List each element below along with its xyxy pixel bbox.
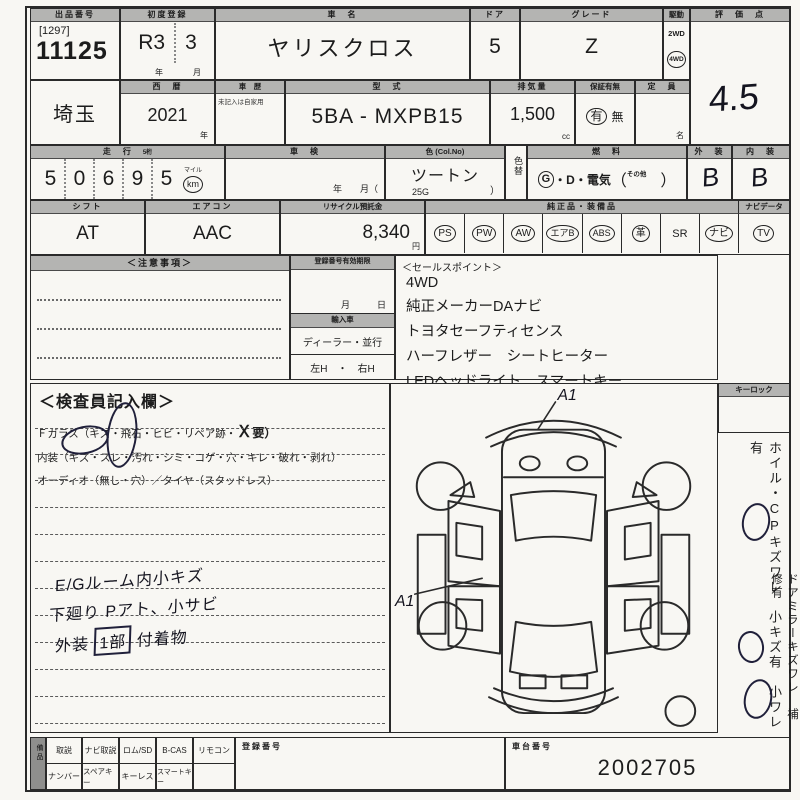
bottom-item-spare-key: スペアキー	[82, 763, 119, 790]
region-value: 埼玉	[31, 81, 119, 143]
equipment-abs: ABS	[583, 214, 622, 253]
equipment-tv: TV	[739, 214, 788, 253]
recycle-fee-value: 8,340	[281, 214, 424, 244]
capacity-cell: 定 員 名	[635, 80, 690, 145]
capacity-header: 定 員	[636, 81, 689, 94]
notice-blank-line	[37, 328, 281, 330]
warranty-options: 有 無	[576, 94, 634, 139]
sales-point: トヨタセーフティセンス	[396, 316, 717, 341]
door-header: ドア	[471, 9, 519, 22]
score-cell: 評 価 点 4.5	[690, 8, 790, 145]
mileage-cell: 走 行 5桁 5 0 6 9 5 マイル km	[30, 145, 225, 200]
notice-box: ＜注意事項＞	[30, 255, 290, 380]
dashed-line	[35, 696, 385, 697]
key-lock-cell: キーロック	[718, 383, 790, 433]
door-cell: ドア 5	[470, 8, 520, 80]
mileage-note: 5桁	[143, 150, 152, 156]
sales-points-box: ＜セールスポイント＞ 4WD 純正メーカーDAナビ トヨタセーフティセンス ハー…	[395, 255, 718, 380]
fuel-cell: 燃 料 G ・D・電気 （ その他 ）	[527, 145, 687, 200]
mileage-unit-block: マイル km	[183, 165, 203, 193]
rear-left-door-window	[456, 599, 482, 631]
first-registration-era: R3	[138, 31, 165, 55]
handwritten-boxed-text: 1部	[94, 625, 132, 656]
sidebar-mirror-note: ドアミラーキズワレ 補修有	[768, 573, 800, 733]
handle-position-option: 左H ・ 右H	[291, 355, 394, 379]
sales-points-header: ＜セールスポイント＞	[396, 256, 717, 274]
color-cell: 色 (Col.No) ツートン 25G ）	[385, 145, 505, 200]
lot-number-header: 出品番号	[31, 9, 119, 22]
displacement-cell: 排気量 1,500 cc	[490, 80, 575, 145]
nav-data-header: ナビデータ	[738, 201, 789, 214]
aircon-header: エアコン	[146, 201, 279, 214]
color-value: ツートン	[386, 159, 504, 186]
chassis-number-header: 車台番号	[506, 738, 789, 755]
recycle-fee-cell: リサイクル預託金 8,340 円	[280, 200, 425, 255]
equipment-sr: SR	[661, 214, 700, 253]
bottom-item-remote: リモコン	[193, 737, 235, 764]
grade-cell: グレード Z	[520, 8, 663, 80]
accessories-side-label-cell: 備品	[30, 737, 46, 790]
first-registration-value: R3 3	[121, 22, 214, 64]
bottom-item-plate: ナンバー	[46, 763, 82, 790]
grade-header: グレード	[521, 9, 662, 22]
notice-blank-line	[37, 357, 281, 359]
car-name-header: 車 名	[216, 9, 469, 22]
bottom-item-manual: 取説	[46, 737, 82, 764]
drivetrain-header: 駆動	[664, 9, 689, 22]
left-side-panel	[418, 535, 446, 634]
fuel-value: G ・D・電気 （ その他 ）	[528, 159, 686, 199]
displacement-header: 排気量	[491, 81, 574, 94]
shift-value: AT	[31, 214, 144, 254]
fuel-header: 燃 料	[528, 146, 686, 159]
audio-tire-checklist: オーディオ（無し・穴）／タイヤ（スタッドレス）	[31, 465, 389, 488]
lot-number-cell: 出品番号 [1297] 11125	[30, 8, 120, 80]
interior-grade-header: 内 装	[733, 146, 789, 159]
damage-mark-a1-left: A1	[394, 593, 414, 610]
interior-grade-cell: 内 装 B	[732, 145, 790, 200]
right-side-panel	[662, 535, 690, 634]
registration-validity-header: 登録番号有効期限	[291, 256, 394, 270]
mileage-digit: 0	[66, 159, 95, 199]
car-top-view-diagram: A1 A1	[391, 384, 716, 731]
stamp-circle	[665, 696, 695, 726]
displacement-value: 1,500	[491, 94, 574, 134]
rear-right-door-window	[625, 599, 651, 631]
warranty-no: 無	[612, 108, 624, 125]
sales-point: ハーフレザー シートヒーター	[396, 341, 717, 366]
km-unit-circled: km	[183, 176, 203, 193]
mileage-digit: 6	[95, 159, 124, 199]
month-unit-label: 月	[193, 67, 201, 78]
door-count: 5	[471, 22, 519, 72]
damage-mark-a1-top: A1	[556, 387, 576, 404]
recycle-fee-header: リサイクル預託金	[281, 201, 424, 214]
rear-bumper	[489, 697, 618, 713]
auction-sheet: 出品番号 [1297] 11125 初度登録 R3 3 年 月 車 名 ヤリスク…	[0, 0, 800, 800]
history-cell: 車 歴 未記入は自家用	[215, 80, 285, 145]
car-name: ヤリスクロス	[216, 22, 469, 72]
capacity-unit: 名	[676, 130, 684, 141]
shift-header: シフト	[31, 201, 144, 214]
year-header: 西 暦	[121, 81, 214, 94]
bottom-item-navi-manual: ナビ取説	[82, 737, 119, 764]
bottom-item-bcas: B-CAS	[156, 737, 193, 764]
equipment-cell: 純正品・装備品 ナビデータ PS PW AW エアB ABS 革 SR ナビ T…	[425, 200, 790, 255]
model-code-cell: 型 式 5BA - MXPB15	[285, 80, 490, 145]
exterior-grade-header: 外 装	[688, 146, 731, 159]
bottom-item-smart-key: スマートキー	[156, 763, 193, 790]
rear-right-wheel	[641, 602, 689, 650]
displacement-unit: cc	[562, 132, 570, 141]
warranty-yes-circled: 有	[586, 108, 606, 125]
windshield	[511, 491, 596, 541]
equipment-navi: ナビ	[700, 214, 739, 253]
mileage-digits: 5 0 6 9 5 マイル km	[31, 159, 224, 199]
import-car-header: 輸入車	[291, 314, 394, 328]
year-cell: 西 暦 2021 年	[120, 80, 215, 145]
accessories-side-label: 備品	[34, 744, 44, 762]
rear-bumper-inner	[494, 688, 613, 701]
color-change-cell: 色替	[505, 145, 527, 200]
middle-column: 登録番号有効期限 月 日 輸入車 ディーラー・並行 左H ・ 右H	[290, 255, 395, 380]
drivetrain-4wd-circled: 4WD	[667, 51, 685, 68]
notice-blank-line	[37, 299, 281, 301]
grade-value: Z	[521, 22, 662, 72]
color-code: 25G	[412, 187, 429, 197]
rear-left-wheel	[419, 602, 467, 650]
chassis-number-value: 2002705	[506, 755, 789, 781]
validity-units: 月 日	[341, 298, 386, 311]
sales-point: 4WD	[396, 274, 717, 291]
inspector-notes-title: ＜検査員記入欄＞	[31, 384, 389, 412]
fuel-paren-close: ）	[660, 167, 676, 191]
damage-mark-line	[538, 402, 556, 430]
sales-point: 純正メーカーDAナビ	[396, 291, 717, 316]
warranty-cell: 保証有無 有 無	[575, 80, 635, 145]
mileage-digit: 9	[124, 159, 153, 199]
first-registration-cell: 初度登録 R3 3 年 月	[120, 8, 215, 80]
car-diagram-box: A1 A1	[390, 383, 718, 733]
equipment-header: 純正品・装備品	[426, 201, 738, 214]
sidebar-notes: ホイル・CPキズワレ 小キズ有 小ワレ有 ドアミラーキズワレ 補修有	[718, 433, 790, 733]
first-registration-month: 3	[185, 31, 197, 55]
bottom-item-rom-sd: ロム/SD	[119, 737, 156, 764]
dashed-line	[35, 669, 385, 670]
dashed-line	[35, 534, 385, 535]
drivetrain-4wd-wrap: 4WD	[664, 38, 689, 68]
inspection-expiry-cell: 車 検 年 月（	[225, 145, 385, 200]
bottom-item-empty	[193, 763, 235, 790]
fuel-gasoline-circled: G	[538, 171, 555, 188]
dashed-line	[35, 507, 385, 508]
score-header: 評 価 点	[691, 9, 789, 22]
score-handwritten: 4.5	[708, 75, 759, 121]
recycle-fee-unit: 円	[412, 241, 420, 252]
dashed-line	[35, 454, 385, 455]
dashed-line	[35, 480, 385, 481]
first-registration-header: 初度登録	[121, 9, 214, 22]
history-header: 車 歴	[216, 81, 284, 94]
front-left-door-window	[456, 523, 482, 560]
equipment-airbag: エアB	[543, 214, 582, 253]
inspector-notes-box: ＜検査員記入欄＞ Ｆガラス（キズ・飛石・ヒビ・リペア跡・Ｘ要） 内装（キズ・スレ…	[30, 383, 390, 733]
inspection-expiry-header: 車 検	[226, 146, 384, 159]
equipment-aw: AW	[504, 214, 543, 253]
hood-detail	[567, 456, 587, 470]
color-paren-close: ）	[490, 182, 500, 197]
lot-number: 11125	[31, 37, 119, 66]
chassis-number-cell: 車台番号 2002705	[505, 737, 790, 790]
aircon-cell: エアコン AAC	[145, 200, 280, 255]
front-glass-x-mark: Ｘ	[236, 424, 252, 441]
color-change-label: 色替	[512, 156, 525, 176]
fuel-other-label: その他	[627, 168, 647, 178]
notice-header: ＜注意事項＞	[31, 256, 289, 271]
equipment-ps: PS	[426, 214, 465, 253]
handwritten-note: E/Gルーム内小キズ	[55, 562, 205, 597]
color-header: 色 (Col.No)	[386, 146, 504, 159]
equipment-icon-row: PS PW AW エアB ABS 革 SR ナビ TV	[426, 214, 788, 253]
aircon-value: AAC	[146, 214, 279, 254]
drivetrain-2wd: 2WD	[664, 22, 689, 38]
car-body	[502, 430, 605, 713]
fuel-paren-open: （	[611, 167, 627, 191]
year-unit: 年	[200, 130, 208, 141]
handwritten-note: 外装 1部 付着物	[55, 621, 189, 658]
key-lock-header: キーロック	[719, 384, 789, 397]
equipment-pw: PW	[465, 214, 504, 253]
warranty-header: 保証有無	[576, 81, 634, 94]
model-code: 5BA - MXPB15	[286, 94, 489, 139]
hood-detail	[520, 456, 540, 470]
fuel-rest: ・D・電気	[554, 171, 611, 188]
dashed-line	[35, 561, 385, 562]
mile-unit-label: マイル	[183, 165, 203, 174]
mileage-digit: 5	[153, 159, 180, 199]
exterior-grade-handwritten: B	[701, 161, 719, 193]
inspection-expiry-units: 年 月（	[333, 182, 378, 195]
dashed-line	[35, 723, 385, 724]
dealer-parallel-option: ディーラー・並行	[291, 328, 394, 355]
year-unit-label: 年	[155, 67, 163, 78]
region-cell: 埼玉	[30, 80, 120, 145]
mileage-digit: 5	[37, 159, 66, 199]
registration-number-header: 登録番号	[236, 738, 504, 755]
lot-bracket: [1297]	[31, 22, 119, 37]
front-right-door-window	[625, 523, 651, 560]
handwritten-note: 下廻り Pアト、小サビ	[49, 590, 219, 626]
registration-number-cell: 登録番号	[235, 737, 505, 790]
dotted-divider	[174, 23, 176, 63]
mileage-header: 走 行 5桁	[31, 146, 224, 159]
bottom-item-keyless: キーレス	[119, 763, 156, 790]
car-name-cell: 車 名 ヤリスクロス	[215, 8, 470, 80]
shift-cell: シフト AT	[30, 200, 145, 255]
exterior-grade-cell: 外 装 B	[687, 145, 732, 200]
interior-grade-handwritten: B	[750, 161, 768, 193]
history-note: 未記入は自家用	[216, 94, 284, 108]
registration-validity-body: 月 日	[291, 270, 394, 314]
drivetrain-cell: 駆動 2WD 4WD	[663, 8, 690, 80]
model-code-header: 型 式	[286, 81, 489, 94]
rear-window	[510, 622, 597, 677]
equipment-leather: 革	[622, 214, 661, 253]
